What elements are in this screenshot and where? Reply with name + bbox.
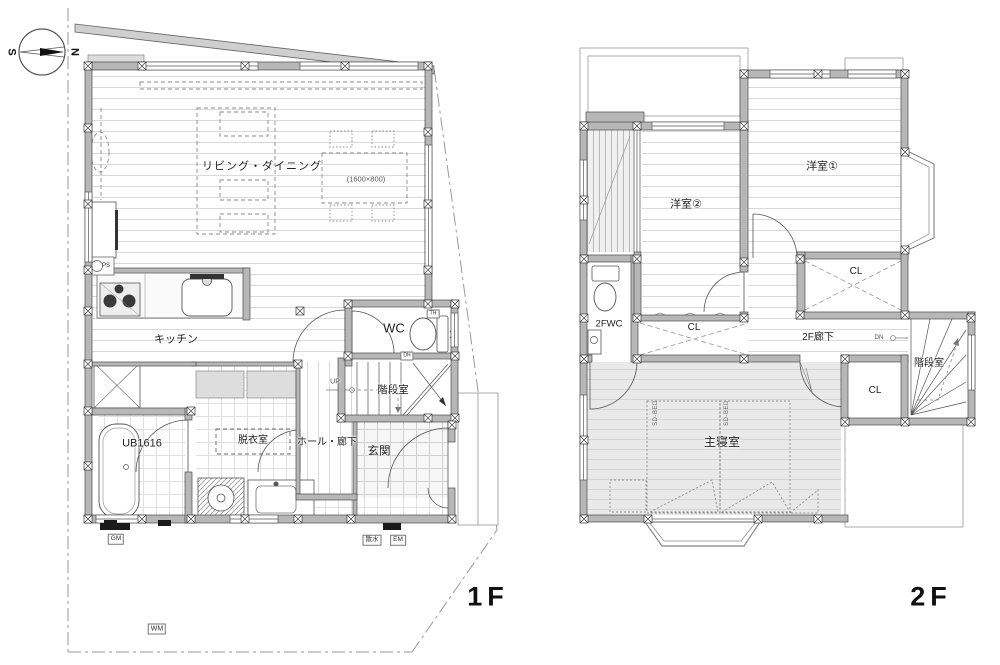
- compass-icon: [19, 29, 65, 75]
- floor2-drawing: [580, 48, 975, 546]
- floorplan-drawing: [0, 0, 1000, 665]
- room-label-bath: UB1616: [122, 439, 162, 450]
- room-label-stairs-1f: 階段室: [377, 385, 409, 396]
- closet-label-top: CL: [688, 323, 701, 333]
- closet-label-stairs: CL: [869, 386, 882, 396]
- room-label-stairs-2f: 階段室: [914, 359, 944, 369]
- ps-label: PS: [102, 263, 110, 269]
- room-label-wc-2f: 2FWC: [596, 319, 623, 329]
- table-size-label: (1600×800): [347, 175, 386, 183]
- bed1-label: SD-BED: [653, 400, 659, 426]
- tv-board: [92, 202, 118, 258]
- compass-north: N: [69, 48, 80, 56]
- up-label: UP: [330, 379, 340, 386]
- bay-window-room1: [901, 148, 934, 253]
- bed2-label: SD-BED: [724, 400, 730, 426]
- kitchen-sink-icon: [182, 274, 232, 316]
- room-label-living-dining: リビング・ダイニング: [202, 162, 322, 173]
- room-label-western2: 洋室②: [670, 200, 702, 211]
- room-label-kitchen: キッチン: [154, 335, 198, 346]
- floor-plan-page: S N リビング・ダイニング (1600×800) キッチン PS WC TH …: [0, 0, 1000, 665]
- room-label-western1: 洋室①: [806, 162, 838, 173]
- washing-machine-icon: [198, 478, 244, 518]
- floor1-drawing: [68, 8, 498, 652]
- th-tag: TH: [427, 310, 440, 319]
- room-label-dressing: 脱衣室: [238, 436, 268, 446]
- entrance-porch: [458, 393, 498, 525]
- stove-icon: [100, 283, 140, 316]
- gas-meter-tag: GM: [108, 534, 124, 545]
- room-label-hall: ホール・廊下: [297, 438, 357, 448]
- closet-label-right: CL: [850, 267, 863, 277]
- room-label-wc: WC: [383, 322, 405, 335]
- room-label-master-bedroom: 主寝室: [704, 436, 740, 448]
- storage-box: [94, 363, 140, 408]
- room-label-hall-2f: 2F廊下: [802, 333, 834, 343]
- compass-south: S: [6, 48, 17, 55]
- floor-label-2f: 2F: [910, 584, 952, 611]
- room-label-entrance: 玄関: [368, 446, 391, 458]
- electric-meter-tag: EM: [390, 535, 406, 546]
- dn-label: DN: [875, 335, 884, 341]
- dh-tag: DH: [400, 352, 413, 361]
- bay-window-bedroom: [645, 519, 760, 546]
- sprinkler-tag: 散水: [363, 535, 382, 546]
- water-meter-tag: WM: [148, 624, 166, 635]
- floor-label-1f: 1F: [467, 584, 509, 611]
